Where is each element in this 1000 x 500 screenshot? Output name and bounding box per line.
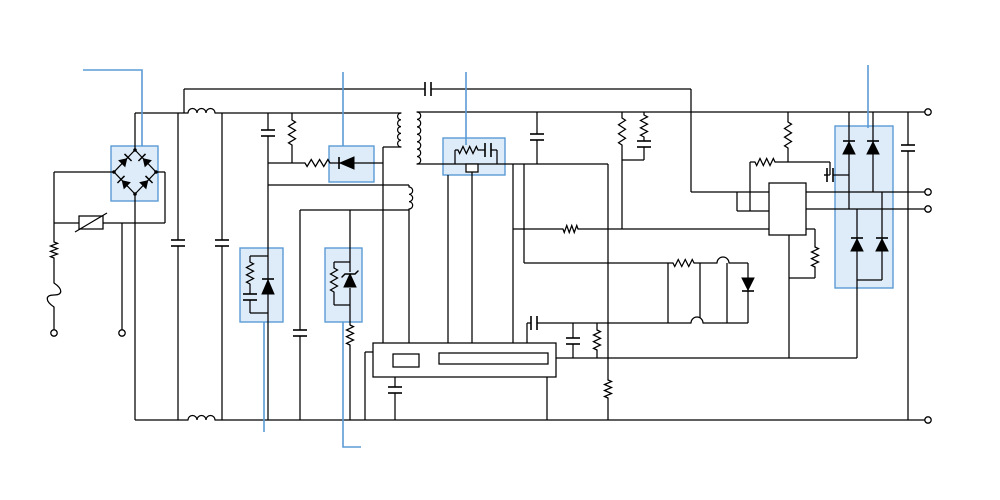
divider-resistor-2 [605, 380, 612, 398]
aux-winding [409, 187, 413, 209]
gate-pulldown-resistor [347, 325, 354, 345]
highlight-output-rectifier[interactable] [835, 126, 893, 288]
snubber-resistor [289, 120, 296, 145]
output-bleeder-resistor [785, 122, 792, 148]
dc-output-terminal-4[interactable] [925, 417, 931, 423]
dc-output-terminal-1[interactable] [925, 109, 931, 115]
damper-resistor [641, 115, 648, 137]
smps-schematic [0, 0, 1000, 500]
wire-hop-1 [717, 257, 729, 263]
highlight-rcd-clamp[interactable] [240, 248, 283, 322]
callout-bridge-rectifier[interactable] [83, 70, 142, 146]
mosfet-gate [466, 164, 478, 172]
highlight-zener-clamp[interactable] [325, 248, 362, 322]
pwm-controller-block-1 [393, 354, 419, 367]
dc-output-terminal-2[interactable] [925, 189, 931, 195]
emi-choke-bottom [188, 416, 215, 421]
sense-resistor [812, 247, 819, 267]
bridge-rectifier [133, 192, 137, 196]
divider-resistor-1 [594, 330, 601, 350]
bridge-rectifier [112, 170, 116, 174]
fuse [47, 283, 61, 307]
bridge-rectifier [133, 148, 137, 152]
opto-led-resistor [673, 260, 694, 267]
ac-input-terminal-2[interactable] [119, 330, 125, 336]
dc-output-terminal-3[interactable] [925, 206, 931, 212]
bridge-rectifier [154, 170, 158, 174]
primary-winding [398, 113, 401, 147]
wire-hop-2 [691, 317, 703, 323]
clamp-series-resistor [305, 160, 330, 167]
inrush-resistor [51, 242, 58, 258]
ac-input-terminal-1[interactable] [51, 330, 57, 336]
feedback-upper-resistor [619, 118, 626, 145]
secondary-winding [417, 112, 421, 164]
pwm-controller-block-2 [439, 353, 548, 364]
feedback-series-resistor [563, 226, 578, 233]
regulator-bias-resistor [755, 159, 775, 166]
schematic-canvas [0, 0, 1000, 500]
feedback-zener [742, 278, 754, 290]
emi-choke-top [188, 109, 215, 114]
regulator-ic [769, 183, 806, 235]
